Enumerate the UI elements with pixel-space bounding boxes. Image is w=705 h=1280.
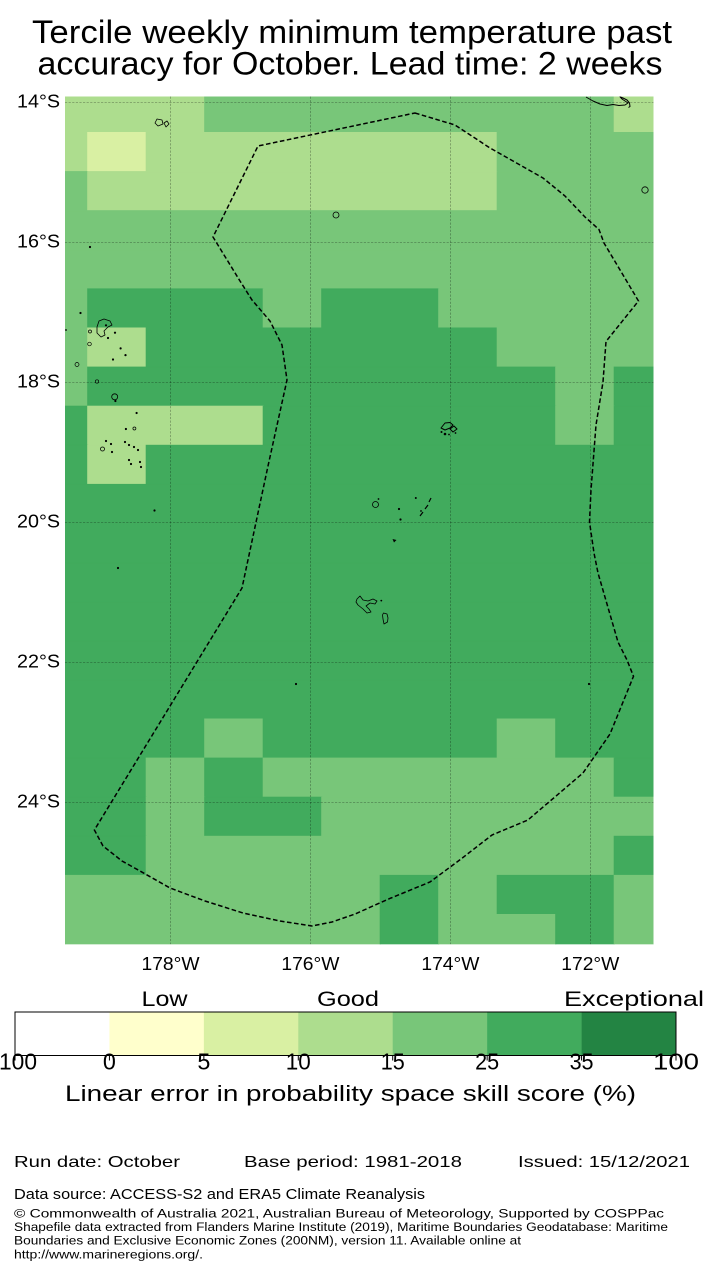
svg-text:100: 100 xyxy=(0,1049,37,1075)
svg-text:Exceptional: Exceptional xyxy=(564,987,704,1011)
svg-text:178°W: 178°W xyxy=(142,953,201,974)
svg-text:176°W: 176°W xyxy=(281,953,340,974)
svg-text:10: 10 xyxy=(286,1049,311,1075)
svg-text:Low: Low xyxy=(142,987,189,1011)
svg-text:Good: Good xyxy=(317,987,379,1011)
svg-text:25: 25 xyxy=(475,1049,499,1075)
svg-text:16°S: 16°S xyxy=(17,232,60,252)
svg-text:100: 100 xyxy=(653,1049,699,1075)
svg-text:Issued: 15/12/2021: Issued: 15/12/2021 xyxy=(518,1154,690,1171)
svg-text:Boundaries and Exclusive Econo: Boundaries and Exclusive Economic Zones … xyxy=(14,1234,522,1248)
svg-text:24°S: 24°S xyxy=(17,792,60,812)
svg-text:35: 35 xyxy=(570,1049,594,1075)
svg-text:20°S: 20°S xyxy=(17,512,60,532)
svg-text:15: 15 xyxy=(381,1049,405,1075)
svg-text:14°S: 14°S xyxy=(17,92,60,112)
svg-text:http://www.marineregions.org/.: http://www.marineregions.org/. xyxy=(14,1247,203,1261)
svg-text:Run date: October: Run date: October xyxy=(14,1154,181,1171)
svg-text:174°W: 174°W xyxy=(421,953,480,974)
svg-text:0: 0 xyxy=(103,1049,116,1075)
svg-text:Data source: ACCESS-S2 and ERA: Data source: ACCESS-S2 and ERA5 Climate … xyxy=(14,1187,425,1203)
svg-text:Shapefile data extracted from: Shapefile data extracted from Flanders M… xyxy=(14,1220,668,1234)
svg-text:Linear error in probability sp: Linear error in probability space skill … xyxy=(65,1081,636,1106)
svg-text:© Commonwealth of Australia 20: © Commonwealth of Australia 2021, Austra… xyxy=(14,1207,664,1221)
svg-text:accuracy for October. Lead tim: accuracy for October. Lead time: 2 weeks xyxy=(38,46,663,82)
svg-text:18°S: 18°S xyxy=(17,372,60,392)
svg-text:22°S: 22°S xyxy=(17,652,60,672)
svg-text:172°W: 172°W xyxy=(561,953,620,974)
svg-text:5: 5 xyxy=(197,1049,210,1075)
svg-text:Base period: 1981-2018: Base period: 1981-2018 xyxy=(244,1154,462,1171)
